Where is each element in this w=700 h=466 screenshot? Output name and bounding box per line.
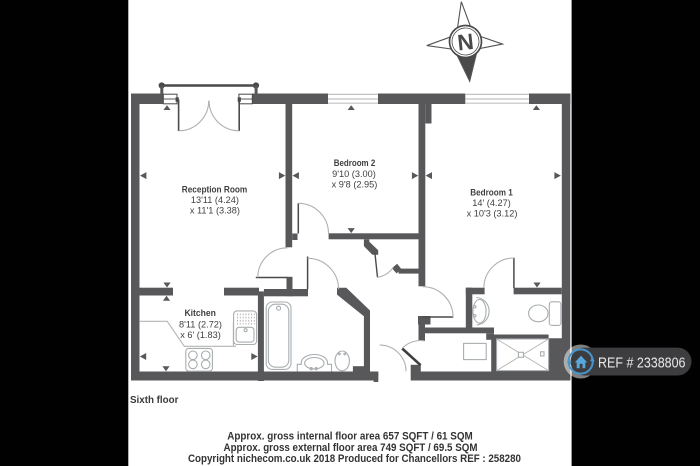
svg-text:x 10'3 (3.12): x 10'3 (3.12) [467,209,518,219]
svg-text:Bedroom 1: Bedroom 1 [470,188,513,199]
svg-text:N: N [456,29,475,56]
svg-text:Kitchen: Kitchen [184,308,216,319]
svg-text:x 11'1 (3.38): x 11'1 (3.38) [190,206,240,216]
svg-text:9'10 (3.00): 9'10 (3.00) [332,169,376,179]
svg-text:x 6' (1.83): x 6' (1.83) [180,330,221,340]
svg-text:8'11 (2.72): 8'11 (2.72) [179,320,222,330]
svg-text:Bedroom 2: Bedroom 2 [334,158,376,169]
svg-text:Approx. gross internal floor a: Approx. gross internal floor area 657 SQ… [227,431,473,443]
svg-text:REF # 2338806: REF # 2338806 [598,355,686,372]
svg-text:Sixth floor: Sixth floor [130,395,179,406]
svg-text:14' (4.27): 14' (4.27) [472,198,511,208]
svg-text:Copyright nichecom.co.uk 2018: Copyright nichecom.co.uk 2018 Produced f… [188,453,521,465]
svg-text:Reception Room: Reception Room [182,184,248,195]
svg-text:x 9'8 (2.95): x 9'8 (2.95) [332,179,378,189]
svg-text:13'11 (4.24): 13'11 (4.24) [191,195,239,205]
